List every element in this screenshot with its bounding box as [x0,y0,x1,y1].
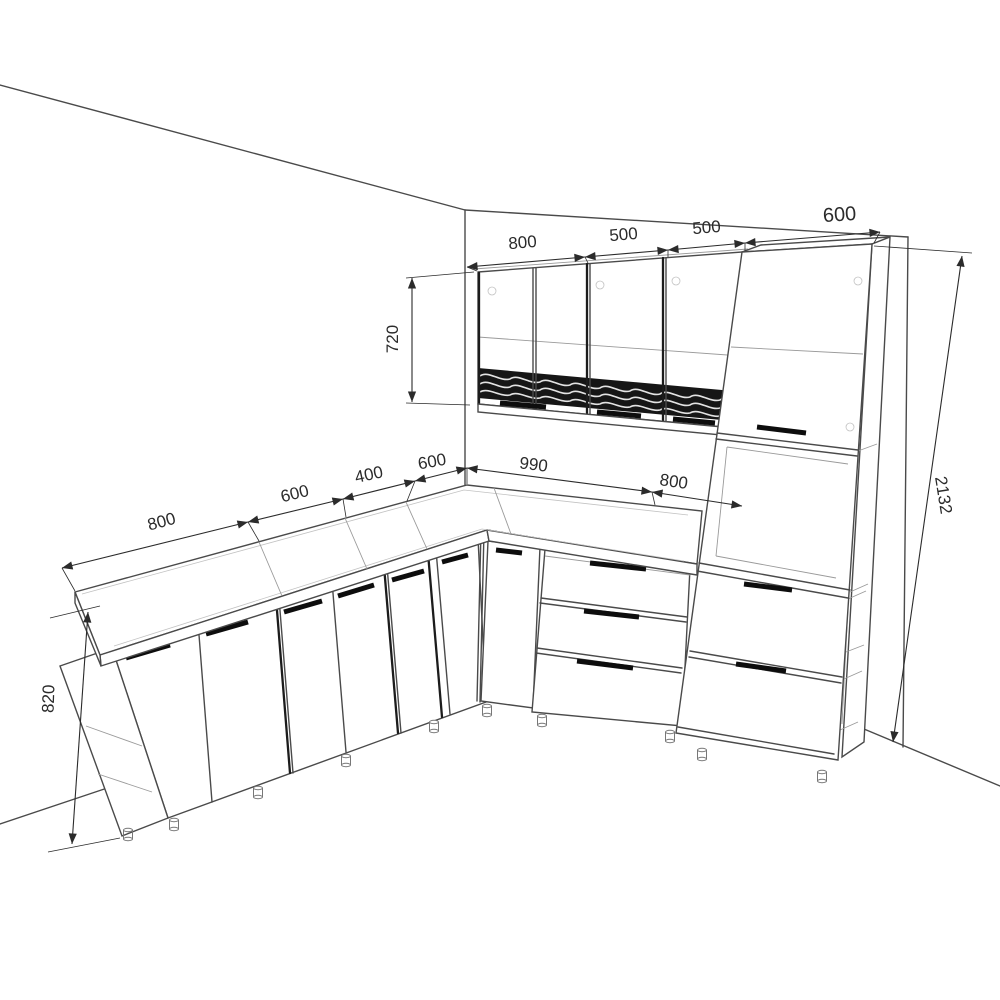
right-wall-outer-edge [903,237,908,747]
upper-cabinet-row [474,249,755,438]
dim-label-left-400: 400 [353,462,385,486]
foot-icon [170,818,179,830]
dim-label-left-600: 600 [279,481,311,506]
dim-label-upper-500b: 500 [692,217,722,238]
dim-label-left-600-corner: 600 [416,450,447,474]
foot-icon [430,720,439,732]
foot-icon [666,730,675,742]
dim-label-upper-600: 600 [822,203,857,227]
dim-label-upper-800: 800 [508,232,538,253]
dim-label-left-800: 800 [145,509,177,535]
dim-upper-800: 800 [467,232,585,267]
dim-upper-height-720: 720 [383,272,474,405]
foot-icon [483,704,492,716]
dim-label-right-990: 990 [518,453,548,475]
corner-door-right [481,541,540,708]
floor-edge-right-wall [852,724,1000,786]
dim-left-600: 600 [248,481,343,522]
dim-label-upper-500a: 500 [609,224,639,245]
foot-icon [818,770,827,782]
dim-left-400: 400 [343,462,415,499]
dim-label-right-800: 800 [658,470,689,493]
drawing-canvas: 800 500 500 600 720 800 600 [0,0,1000,1000]
dim-right-990: 990 [467,453,652,492]
kitchen-technical-drawing: 800 500 500 600 720 800 600 [0,0,1000,1000]
foot-icon [698,748,707,760]
drawer-cabinet-front [532,549,690,726]
dim-label-2132: 2132 [931,475,956,515]
corner-door-handle [496,550,522,553]
dim-left-600-corner: 600 [415,450,467,481]
dim-label-820: 820 [39,684,59,713]
dim-tall-height-2132: 2132 [874,246,972,742]
dim-upper-600: 600 [745,203,880,243]
dim-label-720: 720 [383,325,402,353]
ceiling-edge-left-wall [0,85,465,210]
right-counter-extension-lines [652,492,655,505]
dim-upper-500b: 500 [668,217,745,250]
foot-icon [254,786,263,798]
foot-icon [342,754,351,766]
dim-upper-500a: 500 [585,224,668,257]
foot-icon [538,714,547,726]
